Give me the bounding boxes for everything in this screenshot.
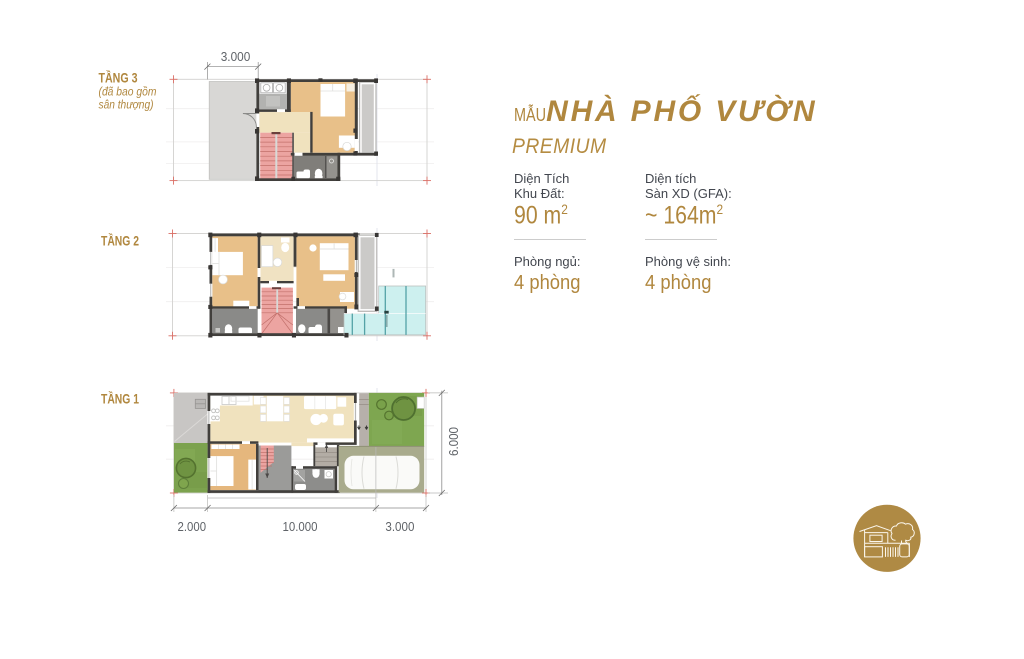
svg-text:sân thượng): sân thượng) <box>99 100 154 112</box>
svg-text:TẦNG 2: TẦNG 2 <box>101 234 139 249</box>
svg-text:TẦNG 3: TẦNG 3 <box>99 71 138 86</box>
svg-text:(đã bao gồm: (đã bao gồm <box>99 87 157 99</box>
svg-text:2.000: 2.000 <box>178 520 207 534</box>
svg-text:3.000: 3.000 <box>221 50 251 64</box>
svg-text:10.000: 10.000 <box>283 520 318 534</box>
svg-text:3.000: 3.000 <box>385 520 414 534</box>
svg-text:TẦNG 1: TẦNG 1 <box>101 392 139 407</box>
svg-text:6.000: 6.000 <box>447 427 461 456</box>
